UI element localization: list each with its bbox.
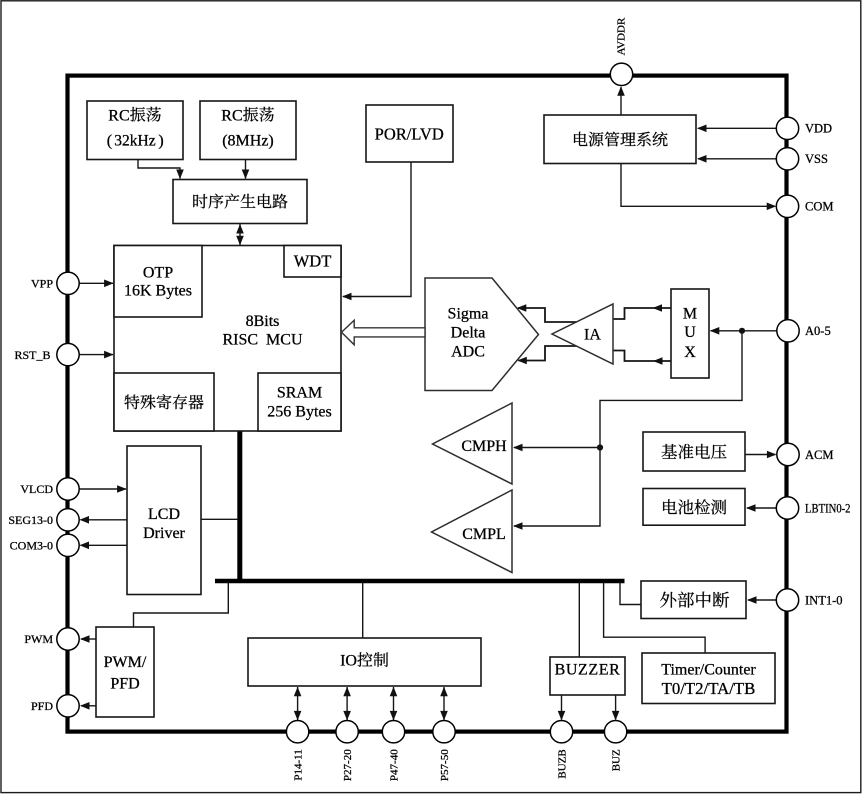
- svg-text:Delta: Delta: [451, 324, 486, 341]
- svg-text:RC: RC: [221, 107, 242, 124]
- svg-text:P27-20: P27-20: [342, 749, 354, 781]
- svg-text:OTP: OTP: [143, 264, 173, 281]
- svg-text:8Bits: 8Bits: [246, 313, 280, 330]
- svg-text:): ): [158, 132, 163, 149]
- svg-text:INT1-0: INT1-0: [805, 593, 843, 607]
- svg-text:VLCD: VLCD: [20, 482, 53, 496]
- svg-text:SEG13-0: SEG13-0: [8, 513, 53, 527]
- svg-text:AVDDR: AVDDR: [615, 17, 627, 55]
- svg-text:(: (: [107, 132, 112, 149]
- svg-text:LCD: LCD: [148, 506, 180, 523]
- svg-text:LBTIN0-2: LBTIN0-2: [805, 501, 851, 515]
- svg-text:RC: RC: [108, 107, 129, 124]
- svg-text:CMPH: CMPH: [461, 438, 507, 455]
- svg-text:RST_B: RST_B: [14, 348, 50, 362]
- svg-text:M: M: [683, 305, 697, 322]
- svg-text:P57-50: P57-50: [439, 749, 451, 781]
- svg-text:Timer/Counter: Timer/Counter: [661, 662, 756, 679]
- svg-text:T0/T2/TA/TB: T0/T2/TA/TB: [662, 679, 756, 698]
- svg-text:IO: IO: [340, 653, 357, 670]
- svg-text:16K Bytes: 16K Bytes: [124, 282, 192, 299]
- svg-text:P47-40: P47-40: [389, 749, 401, 781]
- svg-text:32kHz: 32kHz: [114, 132, 155, 149]
- svg-text:(8MHz): (8MHz): [222, 132, 274, 149]
- svg-text:CMPL: CMPL: [462, 526, 506, 543]
- svg-text:A0-5: A0-5: [805, 324, 831, 338]
- svg-text:ADC: ADC: [451, 343, 485, 360]
- svg-text:SRAM: SRAM: [277, 385, 322, 402]
- svg-text:VPP: VPP: [31, 276, 53, 290]
- svg-text:P14-11: P14-11: [293, 749, 305, 780]
- svg-text:PFD: PFD: [110, 675, 139, 692]
- svg-text:256 Bytes: 256 Bytes: [267, 404, 331, 421]
- svg-text:Driver: Driver: [143, 525, 185, 542]
- svg-text:POR/LVD: POR/LVD: [375, 125, 444, 144]
- svg-text:Sigma: Sigma: [448, 305, 489, 322]
- svg-text:ACM: ACM: [805, 448, 833, 462]
- svg-text:BUZ: BUZ: [611, 749, 623, 771]
- svg-text:PWM: PWM: [24, 632, 53, 646]
- svg-text:IA: IA: [584, 327, 601, 344]
- svg-text:U: U: [684, 324, 696, 341]
- svg-text:BUZZER: BUZZER: [555, 662, 621, 679]
- svg-text:PWM/: PWM/: [104, 654, 147, 671]
- svg-text:COM3-0: COM3-0: [10, 538, 53, 552]
- svg-text:WDT: WDT: [294, 252, 332, 271]
- svg-text:X: X: [684, 344, 696, 361]
- svg-text:RISC MCU: RISC MCU: [222, 332, 302, 349]
- svg-text:VDD: VDD: [805, 122, 832, 136]
- svg-text:PFD: PFD: [31, 699, 53, 713]
- svg-text:COM: COM: [805, 200, 833, 214]
- svg-text:BUZB: BUZB: [557, 749, 569, 778]
- svg-text:VSS: VSS: [805, 152, 828, 166]
